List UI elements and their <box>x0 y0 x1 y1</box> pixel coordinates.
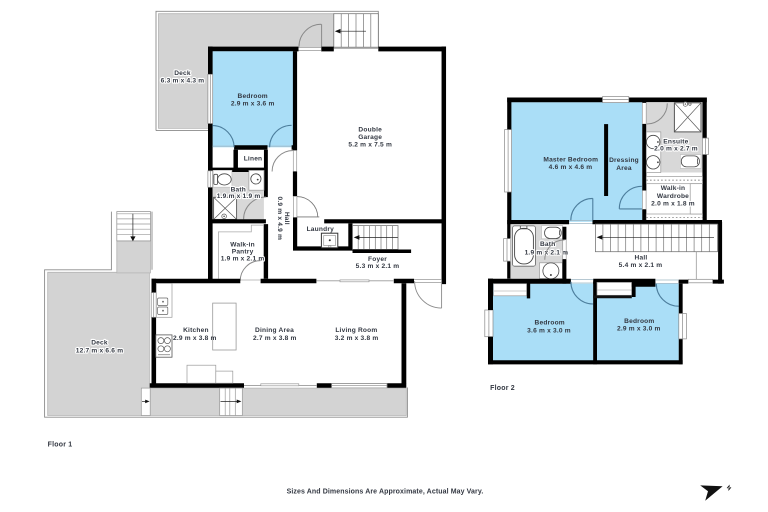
svg-text:Deck: Deck <box>91 340 108 347</box>
svg-text:4.6 m x 4.6 m: 4.6 m x 4.6 m <box>549 164 593 171</box>
svg-text:1.9 m x 1.9 m: 1.9 m x 1.9 m <box>217 193 261 200</box>
svg-text:Ensuite: Ensuite <box>663 138 688 145</box>
svg-text:Dressing: Dressing <box>609 157 639 164</box>
svg-text:6.3 m x 4.3 m: 6.3 m x 4.3 m <box>161 77 205 84</box>
svg-text:5.2 m x 7.5 m: 5.2 m x 7.5 m <box>348 141 392 148</box>
svg-text:5.4 m x 2.1 m: 5.4 m x 2.1 m <box>619 262 663 269</box>
svg-text:Dining Area: Dining Area <box>255 327 294 334</box>
svg-text:Wardrobe: Wardrobe <box>657 193 689 200</box>
svg-text:Sizes And Dimensions Are Appro: Sizes And Dimensions Are Approximate, Ac… <box>287 489 484 496</box>
svg-text:Bedroom: Bedroom <box>238 93 268 100</box>
svg-text:Walk-in: Walk-in <box>661 185 686 192</box>
svg-text:2.0 m x 1.8 m: 2.0 m x 1.8 m <box>651 201 695 208</box>
svg-text:Living Room: Living Room <box>335 327 377 334</box>
svg-text:Kitchen: Kitchen <box>183 327 209 334</box>
svg-text:5.3 m x 2.1 m: 5.3 m x 2.1 m <box>356 263 400 270</box>
svg-text:0.9 m x 4.9 m: 0.9 m x 4.9 m <box>276 196 283 240</box>
svg-text:3.2 m x 3.8 m: 3.2 m x 3.8 m <box>335 335 379 342</box>
svg-text:Laundry: Laundry <box>307 226 335 233</box>
svg-text:Garage: Garage <box>358 134 382 141</box>
svg-text:Bedroom: Bedroom <box>535 319 565 326</box>
svg-text:Bath: Bath <box>540 241 555 248</box>
svg-text:Hall: Hall <box>635 255 648 262</box>
svg-text:Hall: Hall <box>283 212 290 225</box>
svg-text:2.9 m x 3.0 m: 2.9 m x 3.0 m <box>617 326 661 333</box>
svg-text:3.6 m x 3.0 m: 3.6 m x 3.0 m <box>527 328 571 335</box>
svg-text:12.7 m x 6.6 m: 12.7 m x 6.6 m <box>76 347 124 354</box>
svg-text:Floor 2: Floor 2 <box>490 385 515 392</box>
svg-text:Walk-in: Walk-in <box>230 242 255 249</box>
svg-text:2.9 m x 3.6 m: 2.9 m x 3.6 m <box>231 100 275 107</box>
svg-text:Floor 1: Floor 1 <box>48 441 73 448</box>
svg-text:Bedroom: Bedroom <box>624 318 654 325</box>
svg-text:2.9 m x 3.8 m: 2.9 m x 3.8 m <box>173 335 217 342</box>
svg-text:Double: Double <box>358 126 382 133</box>
svg-text:Linen: Linen <box>244 156 263 163</box>
svg-text:2.0 m x 2.7 m: 2.0 m x 2.7 m <box>654 145 698 152</box>
svg-text:Foyer: Foyer <box>368 256 387 263</box>
svg-text:Area: Area <box>616 165 632 172</box>
svg-text:2.7 m x 3.8 m: 2.7 m x 3.8 m <box>253 335 297 342</box>
svg-text:Master Bedroom: Master Bedroom <box>543 156 598 163</box>
svg-text:Deck: Deck <box>174 70 191 77</box>
